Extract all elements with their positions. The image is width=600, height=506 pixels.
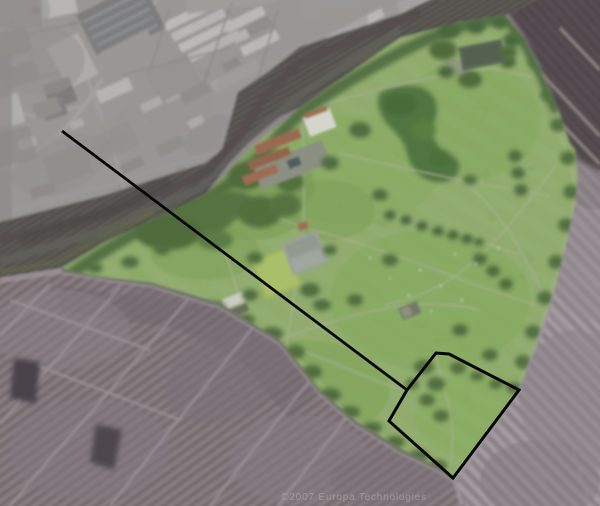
svg-text:©2007 Europa Technologies: ©2007 Europa Technologies: [281, 492, 427, 503]
